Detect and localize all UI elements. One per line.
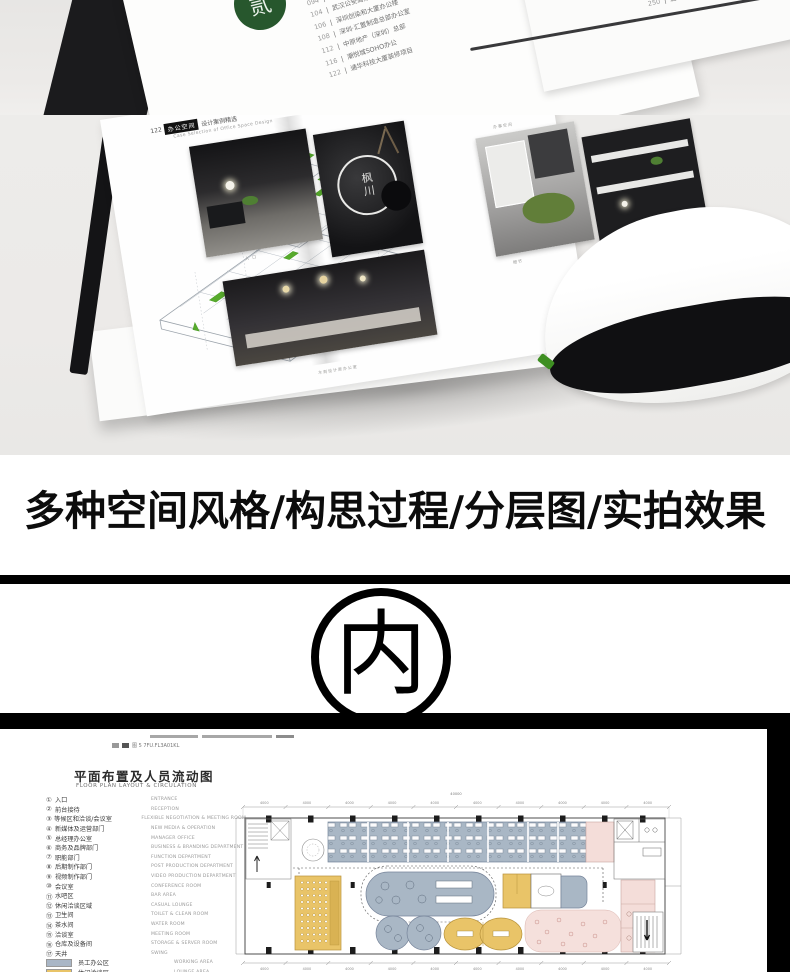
pendant-lamp-icon	[319, 275, 328, 284]
dim-label: 4000	[643, 967, 652, 971]
legend-item: ⑫休闲洽谈区域CASUAL LOUNGE	[46, 901, 246, 911]
branch-decor	[377, 129, 385, 155]
pink-lounge	[525, 910, 621, 952]
reception-desk	[207, 201, 246, 228]
floor-plan-drawing: 40000 4000400040004000400040004000400040…	[233, 782, 767, 972]
lamp-icon	[621, 200, 628, 207]
dim-label: 4000	[558, 967, 567, 971]
legend-item: ⑬卫生间TOILET & CLEAN ROOM	[46, 910, 246, 920]
legend-item: ④新媒体及运营部门NEW MEDIA & OPERATION	[46, 824, 246, 834]
legend-item: ⑧后期制作部门POST PRODUCTION DEPARTMENT	[46, 862, 246, 872]
legend-item: ⑩会议室CONFERENCE ROOM	[46, 881, 246, 891]
shelf	[596, 171, 694, 195]
page: 贰 092|金融街控股办公楼094|西安联合办公空间104|武汉公安局办公楼10…	[0, 0, 790, 972]
dim-label: 4000	[430, 967, 439, 971]
divider-bar-top	[0, 575, 790, 584]
floor-plan-page: 图 5 7FU.FL3A01KL 平面布置及人员流动图 FLOOR PLAN L…	[0, 729, 767, 972]
legend-item: ③等候区和洽谈/会议室FLEXIBLE NEGOTIATION & MEETIN…	[46, 814, 246, 824]
legend-item: ⑥商务及品牌部门BUSINESS & BRANDING DEPARTMENT	[46, 843, 246, 853]
dim-total: 40000	[450, 792, 462, 796]
pendant-lamp-icon	[359, 275, 366, 282]
open-office-band	[328, 822, 586, 862]
lamp-icon	[225, 180, 235, 190]
fragment-text: 图 5 7FU.FL3A01KL	[132, 742, 179, 749]
white-frame	[485, 140, 535, 208]
dim-label: 4000	[345, 967, 354, 971]
dim-label: 4000	[260, 967, 269, 971]
branch-decor	[384, 126, 399, 153]
dim-label: 4000	[388, 801, 397, 805]
legend-item: ⑭茶水间WATER ROOM	[46, 920, 246, 930]
central-blob-office	[366, 872, 494, 916]
photo-logo-wall: 枫川	[313, 121, 423, 258]
legend-swatch-item: 员工办公区WORKING AREA	[46, 958, 246, 968]
dim-label: 4000	[473, 801, 482, 805]
plan-subtitle: FLOOR PLAN LAYOUT & CIRCULATION	[76, 783, 197, 789]
legend-swatch-item: 休闲洽谈区LOUNGE AREA	[46, 968, 246, 972]
dim-label: 4000	[345, 801, 354, 805]
legend-item: ⑪水吧区BAR AREA	[46, 891, 246, 901]
legend-item: ⑯仓库及设备间STORAGE & SERVER ROOM	[46, 939, 246, 949]
dim-label: 4000	[601, 801, 610, 805]
legend-item: ⑦职能部门FUNCTION DEPARTMENT	[46, 853, 246, 863]
legend-swatch	[46, 959, 72, 967]
dim-label: 4000	[303, 801, 312, 805]
seal-char: 贰	[245, 0, 274, 22]
dim-label: 4000	[430, 801, 439, 805]
pink-room-top	[586, 822, 614, 862]
plan-legend: ①入口ENTRANCE②前台接待RECEPTION③等候区和洽谈/会议室FLEX…	[46, 795, 246, 972]
legend-item: ⑨视频制作部门VIDEO PRODUCTION DEPARTMENT	[46, 872, 246, 882]
cropped-text-smudge	[150, 735, 294, 738]
headline-text: 多种空间风格/构思过程/分层图/实拍效果	[0, 455, 790, 537]
legend-item: ①入口ENTRANCE	[46, 795, 246, 805]
dim-label: 4000	[303, 967, 312, 971]
stair-right	[633, 912, 663, 952]
dim-label: 4000	[516, 801, 525, 805]
dim-label: 4000	[601, 967, 610, 971]
plant-icon	[650, 156, 663, 166]
auditorium	[295, 876, 341, 950]
mini-swatch	[112, 743, 119, 748]
dim-top: 40000 4000400040004000400040004000400040…	[241, 792, 671, 818]
headline-band: 多种空间风格/构思过程/分层图/实拍效果	[0, 455, 790, 575]
page-number: 122	[150, 127, 162, 136]
dark-ceiling	[528, 129, 575, 179]
book-spread-photo: 122 办公空间 设计案例精选 Case Selection of Office…	[0, 115, 790, 455]
dim-label: 4000	[260, 801, 269, 805]
logo-text: 枫川	[357, 171, 377, 199]
dim-bottom: 4000400040004000400040004000400040004000	[241, 961, 671, 971]
photo-office-garden	[475, 121, 594, 257]
center-right-rooms	[503, 874, 587, 908]
top-book-photo: 贰 092|金融街控股办公楼094|西安联合办公空间104|武汉公安局办公楼10…	[0, 0, 790, 115]
legend-item: ②前台接待RECEPTION	[46, 805, 246, 815]
dim-label: 4000	[516, 967, 525, 971]
photo-reception	[189, 128, 323, 257]
nei-emblem: 内	[311, 588, 451, 726]
shelf	[591, 139, 689, 163]
right-black-edge	[767, 729, 790, 972]
cropped-legend-fragment: 图 5 7FU.FL3A01KL	[112, 742, 179, 749]
divider-bar-bottom	[0, 713, 790, 729]
nei-char: 内	[335, 609, 427, 701]
pendant-lamp-icon	[282, 285, 290, 293]
plant-icon	[241, 195, 258, 206]
dim-label: 4000	[643, 801, 652, 805]
mini-swatch	[122, 743, 129, 748]
legend-item: ⑤总经理办公室MANAGER OFFICE	[46, 833, 246, 843]
legend-item: ⑮洽谈室MEETING ROOM	[46, 929, 246, 939]
legend-item: ⑰天井SWING	[46, 949, 246, 959]
dim-label: 4000	[388, 967, 397, 971]
oval-meeting-rooms	[444, 918, 522, 950]
dim-label: 4000	[558, 801, 567, 805]
dim-label: 4000	[473, 967, 482, 971]
